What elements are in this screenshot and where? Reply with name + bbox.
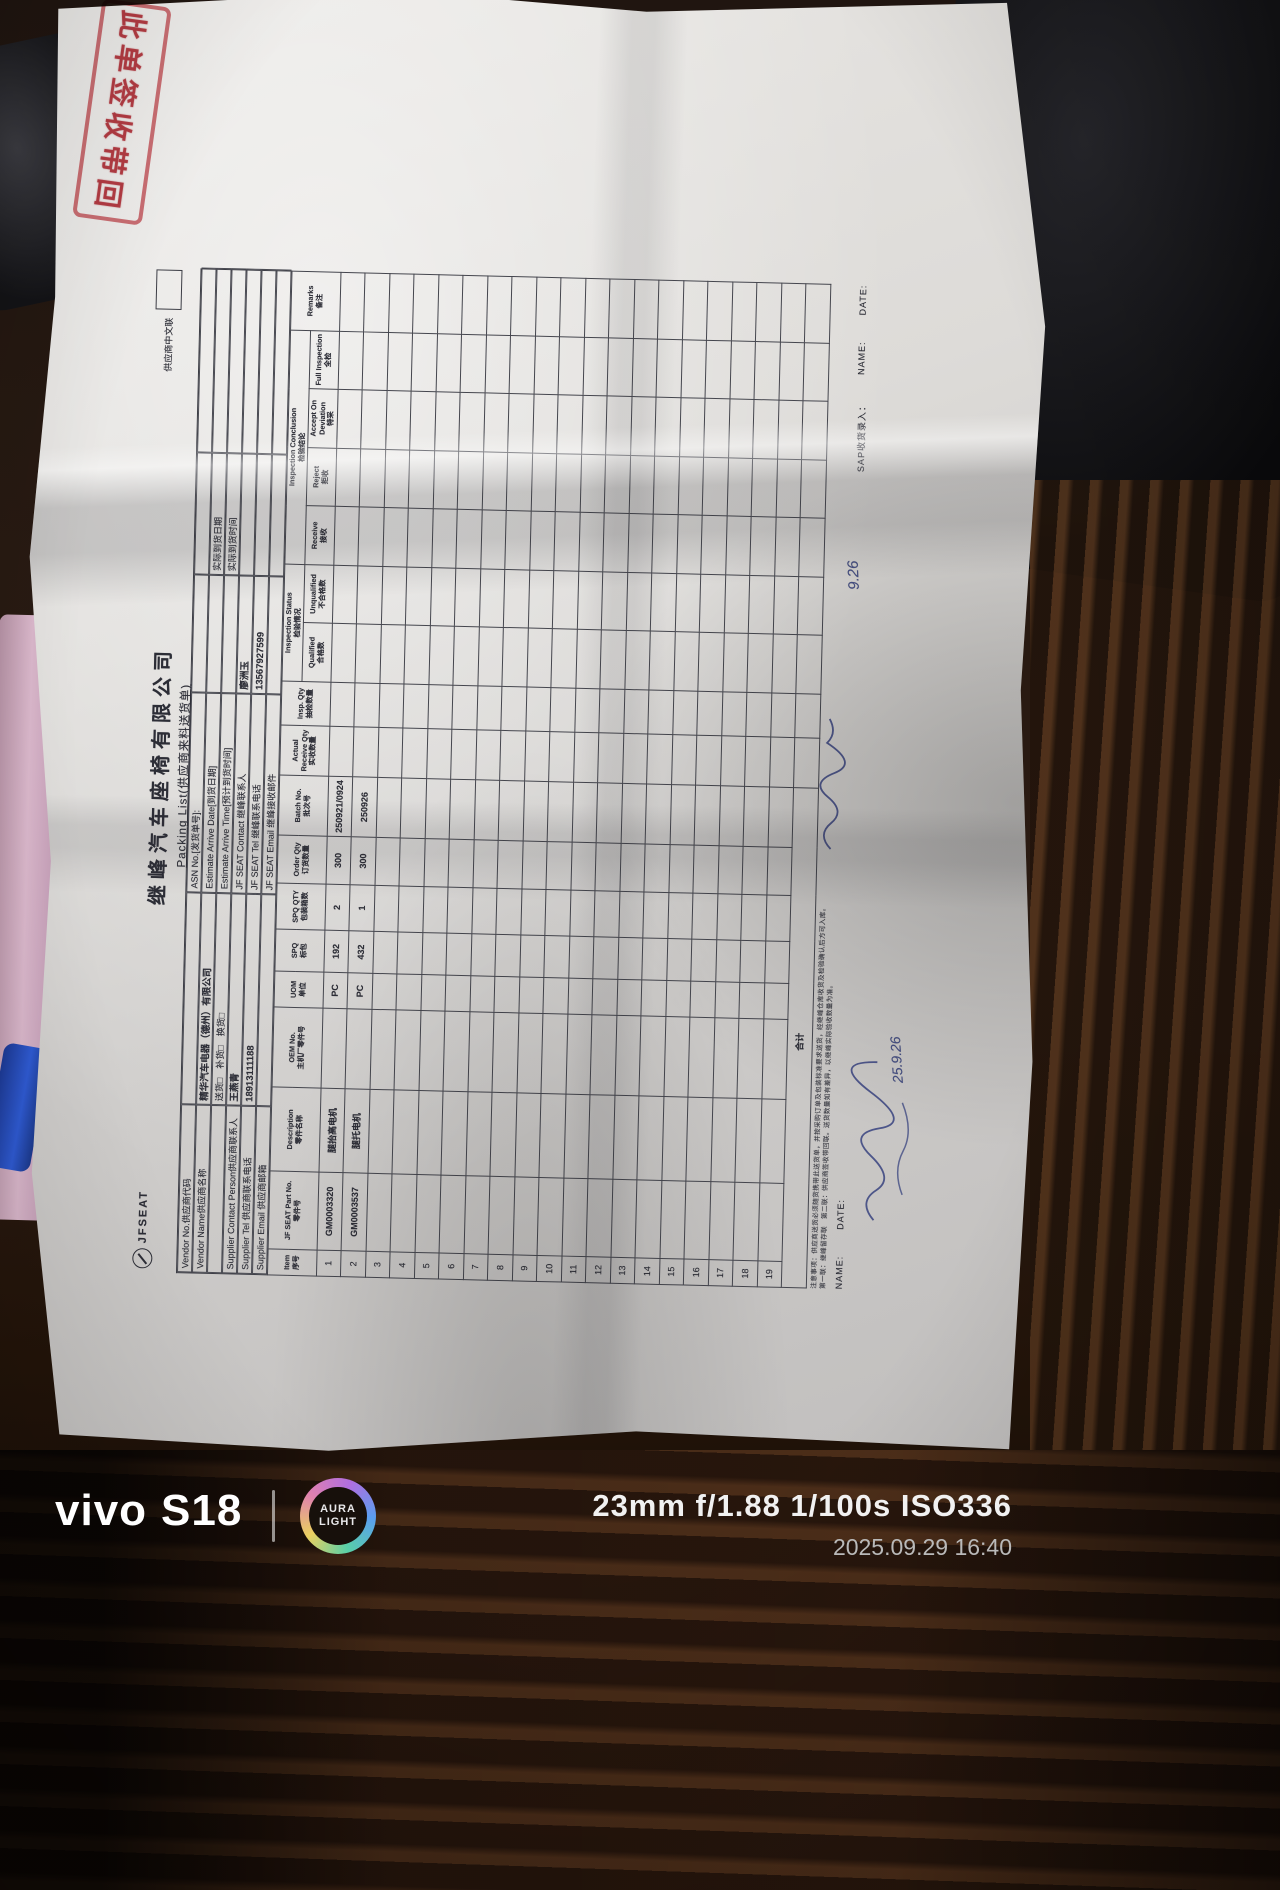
cell-r17-c4 — [714, 982, 739, 1019]
cell-r18-c14 — [751, 458, 777, 517]
cell-r13-c16 — [632, 338, 658, 397]
total-cell-c10 — [795, 694, 821, 739]
cell-r3-c9 — [377, 727, 403, 778]
cell-r17-c1 — [708, 1182, 734, 1261]
cell-r10-c11 — [551, 629, 577, 688]
cell-r1-c13 — [333, 507, 359, 566]
cell-r13-c12 — [626, 572, 652, 631]
column-header-1: JF SEAT Part No.零件号 — [268, 1171, 318, 1250]
cell-r6-c16 — [460, 334, 486, 393]
cell-r3-c4 — [371, 973, 396, 1010]
cell-r7-c13 — [480, 510, 506, 569]
cell-r3-c7 — [375, 837, 401, 886]
cell-r12-c14 — [604, 455, 630, 514]
cell-r11-c8 — [572, 782, 598, 843]
cell-r4-c2 — [392, 1090, 419, 1175]
cell-r5-c2 — [416, 1090, 443, 1175]
cell-r3-c8 — [376, 777, 402, 838]
aura-logo-line2: LIGHT — [319, 1516, 357, 1529]
column-header-12: Unqualified不合格数 — [303, 564, 333, 623]
brand-name: vivo — [55, 1486, 147, 1535]
cell-r7-c17 — [486, 276, 512, 335]
cell-r17-c11 — [722, 633, 748, 692]
total-cell-c16 — [803, 342, 829, 401]
cell-r4-c11 — [404, 625, 430, 684]
camera-watermark-bar: vivoS18 AURA LIGHT 23mm f/1.88 1/100s IS… — [0, 1468, 1280, 1598]
column-header-10: Insp. Qty抽检数量 — [281, 681, 331, 726]
column-header-0: Item序号 — [267, 1249, 316, 1276]
column-header-5: SPQ标包 — [275, 929, 325, 972]
cell-r15-c14 — [678, 456, 704, 515]
cell-r5-c13 — [431, 509, 457, 568]
cell-r15-c6 — [667, 893, 693, 940]
cell-r2-c0: 2 — [340, 1251, 365, 1278]
cell-r19-c14 — [776, 459, 802, 518]
cell-r6-c13 — [456, 510, 482, 569]
cell-r1-c11 — [330, 624, 356, 683]
cell-r7-c0: 7 — [463, 1254, 488, 1281]
cell-r19-c11 — [771, 634, 797, 693]
cell-r17-c16 — [730, 341, 756, 400]
cell-r14-c16 — [656, 339, 682, 398]
column-header-8: Batch No.批次号 — [278, 775, 328, 836]
cell-r13-c7 — [619, 843, 645, 892]
cell-r7-c1 — [464, 1176, 490, 1255]
cell-r3-c10 — [378, 683, 404, 728]
cell-r13-c15 — [630, 397, 656, 456]
cell-r17-c14 — [727, 458, 753, 517]
cell-r11-c12 — [577, 571, 603, 630]
cell-r11-c9 — [573, 732, 599, 783]
cell-r8-c3 — [492, 1012, 518, 1093]
cell-r12-c5 — [593, 937, 619, 980]
cell-r10-c9 — [549, 732, 575, 783]
cell-r6-c17 — [462, 275, 488, 334]
cell-r1-c0: 1 — [316, 1250, 341, 1277]
cell-r19-c0: 19 — [757, 1261, 782, 1288]
cell-r16-c9 — [696, 735, 722, 786]
cell-r13-c5 — [617, 937, 643, 980]
handwritten-date-2: 25.9.26 — [887, 1036, 906, 1085]
cell-r13-c17 — [633, 280, 659, 339]
cell-r2-c1: GM0003537 — [341, 1173, 367, 1252]
sap-name-label: NAME: — [856, 341, 870, 375]
cell-r8-c0: 8 — [487, 1254, 512, 1281]
cell-r10-c4 — [543, 978, 568, 1015]
cell-r19-c17 — [780, 283, 806, 342]
column-header-11: Qualified合格数 — [302, 623, 332, 682]
cell-r16-c6 — [692, 893, 718, 940]
copy-checkbox — [156, 269, 183, 310]
cell-r15-c15 — [679, 398, 705, 457]
cell-r16-c12 — [699, 574, 725, 633]
cell-r13-c3 — [614, 1015, 640, 1096]
cell-r3-c2 — [367, 1089, 394, 1174]
cell-r14-c14 — [653, 456, 679, 515]
cell-r1-c7: 300 — [326, 836, 352, 885]
cell-r16-c0: 16 — [683, 1259, 708, 1286]
camera-exif-info: 23mm f/1.88 1/100s ISO336 — [592, 1488, 1012, 1524]
total-cell-c17 — [804, 284, 830, 343]
cell-r3-c5 — [372, 931, 398, 974]
cell-r8-c8 — [498, 780, 524, 841]
cell-r16-c14 — [702, 457, 728, 516]
cell-r2-c16 — [362, 332, 388, 391]
cell-r16-c10 — [697, 691, 723, 736]
cell-r18-c12 — [748, 575, 774, 634]
cell-r14-c1 — [635, 1180, 661, 1259]
cell-r6-c10 — [452, 685, 478, 730]
cell-r3-c14 — [384, 449, 410, 508]
cell-r9-c5 — [519, 935, 545, 978]
cell-r12-c3 — [590, 1015, 616, 1096]
cell-r15-c8 — [670, 785, 696, 846]
cell-r16-c15 — [704, 398, 730, 457]
cell-r8-c14 — [506, 452, 532, 511]
column-header-14: Reject拒收 — [306, 447, 336, 506]
cell-r17-c6 — [716, 894, 742, 941]
cell-r4-c4 — [396, 974, 421, 1011]
cell-r8-c9 — [500, 730, 526, 781]
cell-r8-c11 — [502, 628, 528, 687]
cell-r9-c7 — [521, 841, 547, 890]
cell-r4-c14 — [408, 450, 434, 509]
cell-r14-c17 — [657, 280, 683, 339]
cell-r17-c3 — [712, 1018, 738, 1099]
delivery-note-document: JFSEAT 继峰汽车座椅有限公司 Packing List(供应商来料送货单)… — [130, 267, 959, 1291]
cell-r6-c11 — [453, 627, 479, 686]
cell-r12-c6 — [594, 891, 620, 938]
left-date-label: DATE: — [835, 1199, 849, 1230]
cell-r18-c2 — [735, 1098, 762, 1183]
cell-r15-c9 — [671, 735, 697, 786]
cell-r1-c4: PC — [323, 972, 348, 1009]
cell-r7-c9 — [475, 730, 501, 781]
cell-r9-c2 — [514, 1093, 541, 1178]
column-header-6: SPQ QTY包装箱数 — [276, 883, 326, 930]
cell-r4-c17 — [413, 274, 439, 333]
cell-r11-c5 — [568, 936, 594, 979]
cell-r2-c5: 432 — [348, 931, 374, 974]
cell-r17-c13 — [725, 516, 751, 575]
cell-r12-c8 — [596, 783, 622, 844]
cell-r17-c8 — [719, 786, 745, 847]
cell-r16-c4 — [690, 981, 715, 1018]
cell-r16-c5 — [691, 939, 717, 982]
cell-r9-c14 — [531, 453, 557, 512]
cell-r18-c3 — [737, 1018, 763, 1099]
cell-r5-c17 — [437, 275, 463, 334]
cell-r8-c1 — [488, 1176, 514, 1255]
photo-datetime: 2025.09.29 16:40 — [833, 1534, 1012, 1561]
cell-r12-c2 — [588, 1095, 615, 1180]
cell-r1-c1: GM0003320 — [317, 1172, 343, 1251]
cell-r9-c4 — [518, 977, 543, 1014]
cell-r13-c6 — [618, 891, 644, 938]
cell-r6-c5 — [446, 933, 472, 976]
cell-r7-c5 — [470, 934, 496, 977]
cell-r3-c16 — [387, 332, 413, 391]
cell-r12-c9 — [598, 733, 624, 784]
cell-r17-c15 — [728, 399, 754, 458]
cell-r7-c3 — [468, 1012, 494, 1093]
cell-r10-c6 — [545, 890, 571, 937]
cell-r5-c7 — [424, 839, 450, 888]
cell-r2-c10 — [354, 683, 380, 728]
column-header-16: Full Inspection全检 — [309, 330, 339, 389]
cell-r15-c17 — [682, 281, 708, 340]
cell-r3-c12 — [381, 566, 407, 625]
jf-email-value — [266, 576, 284, 694]
cell-r12-c10 — [599, 689, 625, 734]
cell-r12-c12 — [601, 572, 627, 631]
cell-r9-c11 — [526, 628, 552, 687]
cell-r19-c2 — [759, 1099, 786, 1184]
cell-r8-c17 — [511, 277, 537, 336]
cell-r1-c10 — [329, 682, 355, 727]
cell-r11-c2 — [563, 1094, 590, 1179]
cell-r10-c0: 10 — [536, 1255, 561, 1282]
signature-scribble-2 — [848, 1062, 895, 1221]
cell-r19-c15 — [777, 400, 803, 459]
cell-r17-c0: 17 — [708, 1260, 733, 1287]
cell-r5-c10 — [427, 685, 453, 730]
cell-r4-c9 — [402, 728, 428, 779]
cell-r4-c8 — [400, 778, 426, 839]
cell-r2-c9 — [353, 727, 379, 778]
cell-r9-c12 — [528, 570, 554, 629]
empty-cell — [269, 454, 287, 576]
cell-r14-c8 — [645, 784, 671, 845]
cell-r1-c8: 250921/0924 — [327, 776, 353, 837]
total-cell-c15 — [802, 401, 828, 460]
cell-r15-c1 — [659, 1180, 685, 1259]
cell-r9-c1 — [513, 1177, 539, 1256]
cell-r13-c0: 13 — [610, 1257, 635, 1284]
cell-r6-c2 — [441, 1091, 468, 1176]
cell-r10-c15 — [557, 395, 583, 454]
cell-r16-c1 — [684, 1181, 710, 1260]
cell-r3-c0: 3 — [365, 1251, 390, 1278]
cell-r2-c4: PC — [347, 973, 372, 1010]
cell-r11-c14 — [580, 454, 606, 513]
cell-r11-c6 — [569, 890, 595, 937]
watermark-divider — [272, 1490, 275, 1542]
cell-r16-c3 — [688, 1017, 714, 1098]
cell-r11-c11 — [575, 630, 601, 689]
cell-r17-c12 — [724, 575, 750, 634]
cell-r19-c4 — [763, 983, 788, 1020]
cell-r7-c4 — [469, 976, 494, 1013]
cell-r9-c15 — [532, 394, 558, 453]
cell-r19-c10 — [770, 693, 796, 738]
cell-r10-c2 — [539, 1093, 566, 1178]
cell-r14-c9 — [647, 734, 673, 785]
cell-r6-c14 — [457, 451, 483, 510]
cell-r10-c1 — [537, 1177, 563, 1256]
cell-r19-c6 — [765, 895, 791, 942]
cell-r4-c1 — [390, 1174, 416, 1253]
cell-r15-c4 — [665, 981, 690, 1018]
cell-r4-c15 — [410, 391, 436, 450]
cell-r1-c3 — [321, 1008, 347, 1089]
cell-r18-c13 — [750, 517, 776, 576]
cell-r5-c12 — [430, 568, 456, 627]
cell-r15-c5 — [666, 939, 692, 982]
cell-r18-c6 — [741, 894, 767, 941]
cell-r18-c15 — [753, 400, 779, 459]
cell-r19-c9 — [769, 737, 795, 788]
column-header-7: Order Qty订货数量 — [277, 835, 327, 884]
cell-r5-c5 — [421, 933, 447, 976]
cell-r10-c17 — [559, 278, 585, 337]
cell-r12-c4 — [592, 979, 617, 1016]
photo-scene: JFSEAT 继峰汽车座椅有限公司 Packing List(供应商来料送货单)… — [0, 0, 1280, 1890]
cell-r12-c15 — [606, 396, 632, 455]
cell-r2-c14 — [359, 449, 385, 508]
cell-r1-c14 — [335, 448, 361, 507]
cell-r15-c3 — [663, 1017, 689, 1098]
cell-r14-c12 — [650, 573, 676, 632]
cell-r19-c1 — [757, 1183, 783, 1262]
cell-r1-c2: 腿抬高电机 — [318, 1088, 345, 1173]
cell-r8-c5 — [495, 934, 521, 977]
cell-r4-c5 — [397, 932, 423, 975]
cell-r15-c12 — [675, 574, 701, 633]
cell-r8-c10 — [501, 686, 527, 731]
cell-r14-c3 — [639, 1016, 665, 1097]
total-cell-c9 — [794, 738, 820, 789]
cell-r19-c5 — [764, 941, 790, 984]
cell-r17-c10 — [721, 692, 747, 737]
cell-r1-c5: 192 — [323, 930, 349, 973]
cell-r14-c15 — [655, 397, 681, 456]
cell-r7-c2 — [465, 1092, 492, 1177]
sap-entry-label: SAP收货录入： — [853, 401, 868, 472]
aura-logo-line1: AURA — [320, 1503, 356, 1516]
column-header-2: Description零件名称 — [270, 1087, 321, 1172]
cell-r1-c15 — [336, 389, 362, 448]
cell-r6-c3 — [443, 1011, 469, 1092]
cell-r18-c10 — [746, 692, 772, 737]
cell-r6-c1 — [439, 1175, 465, 1254]
cell-r11-c16 — [583, 337, 609, 396]
cell-r3-c3 — [370, 1009, 396, 1090]
cell-r9-c17 — [535, 277, 561, 336]
cell-r14-c0: 14 — [634, 1258, 659, 1285]
cell-r18-c7 — [742, 846, 768, 895]
cell-r4-c10 — [403, 684, 429, 729]
items-table: Item序号JF SEAT Part No.零件号Description零件名称… — [267, 271, 831, 1289]
cell-r3-c11 — [379, 625, 405, 684]
cell-r18-c11 — [747, 634, 773, 693]
cell-r5-c9 — [426, 729, 452, 780]
cell-r2-c8: 250926 — [351, 777, 377, 838]
cell-r15-c7 — [668, 845, 694, 894]
cell-r16-c17 — [706, 281, 732, 340]
cell-r13-c4 — [616, 979, 641, 1016]
left-signature-block: NAME: DATE: — [833, 1199, 848, 1290]
cell-r6-c6 — [447, 887, 473, 934]
cell-r18-c5 — [740, 940, 766, 983]
cell-r11-c0: 11 — [561, 1256, 586, 1283]
cell-r2-c2: 腿托电机 — [343, 1089, 370, 1174]
cell-r8-c15 — [508, 394, 534, 453]
items-table-body: 1GM0003320腿抬高电机PC1922300250921/09242GM00… — [316, 272, 830, 1288]
cell-r9-c0: 9 — [512, 1255, 537, 1282]
cell-r7-c12 — [479, 569, 505, 628]
cell-r10-c12 — [552, 571, 578, 630]
cell-r5-c0: 5 — [414, 1252, 439, 1279]
wood-table-right — [1030, 480, 1280, 1580]
cell-r9-c10 — [525, 687, 551, 732]
cell-r15-c10 — [672, 691, 698, 736]
cell-r2-c11 — [355, 624, 381, 683]
sap-date-label: DATE: — [857, 284, 871, 315]
cell-r16-c7 — [693, 845, 719, 894]
cell-r10-c16 — [558, 336, 584, 395]
cell-r10-c14 — [555, 453, 581, 512]
cell-r14-c4 — [641, 980, 666, 1017]
cell-r7-c8 — [474, 780, 500, 841]
cell-r9-c13 — [529, 511, 555, 570]
cell-r7-c14 — [482, 452, 508, 511]
jfseat-logo-icon — [132, 1248, 152, 1268]
cell-r2-c13 — [358, 507, 384, 566]
column-header-17: Remarks备注 — [291, 271, 341, 331]
cell-r12-c16 — [607, 338, 633, 397]
cell-r8-c2 — [490, 1092, 517, 1177]
cell-r18-c1 — [733, 1182, 759, 1261]
cell-r5-c1 — [415, 1174, 441, 1253]
cell-r18-c8 — [743, 786, 769, 847]
cell-r4-c12 — [405, 567, 431, 626]
cell-r6-c7 — [448, 839, 474, 888]
cell-r9-c3 — [516, 1013, 542, 1094]
cell-r11-c4 — [567, 978, 592, 1015]
total-cell-c12 — [797, 577, 823, 636]
cell-r5-c11 — [428, 626, 454, 685]
cell-r10-c3 — [541, 1014, 567, 1095]
cell-r12-c1 — [586, 1179, 612, 1258]
cell-r1-c12 — [332, 565, 358, 624]
cell-r17-c2 — [710, 1098, 737, 1183]
cell-r15-c11 — [673, 632, 699, 691]
cell-r15-c2 — [661, 1096, 688, 1181]
cell-r3-c15 — [385, 391, 411, 450]
cell-r2-c17 — [364, 273, 390, 332]
cell-r12-c17 — [608, 279, 634, 338]
cell-r10-c8 — [547, 782, 573, 843]
cell-r9-c8 — [523, 781, 549, 842]
cell-r1-c6: 2 — [324, 884, 350, 931]
cell-r2-c15 — [361, 390, 387, 449]
cell-r12-c11 — [600, 630, 626, 689]
cell-r1-c17 — [339, 272, 365, 331]
jfseat-logo-text: JFSEAT — [137, 1190, 150, 1244]
copy-label: 供应商中文联 — [161, 317, 175, 371]
cell-r17-c7 — [717, 846, 743, 895]
cell-r10-c7 — [546, 842, 572, 891]
cell-r13-c2 — [612, 1095, 639, 1180]
cell-r5-c15 — [434, 392, 460, 451]
cell-r8-c12 — [503, 569, 529, 628]
cell-r4-c7 — [399, 838, 425, 887]
cell-r11-c17 — [584, 278, 610, 337]
cell-r13-c10 — [623, 689, 649, 734]
cell-r2-c7: 300 — [350, 837, 376, 886]
cell-r13-c13 — [627, 514, 653, 573]
